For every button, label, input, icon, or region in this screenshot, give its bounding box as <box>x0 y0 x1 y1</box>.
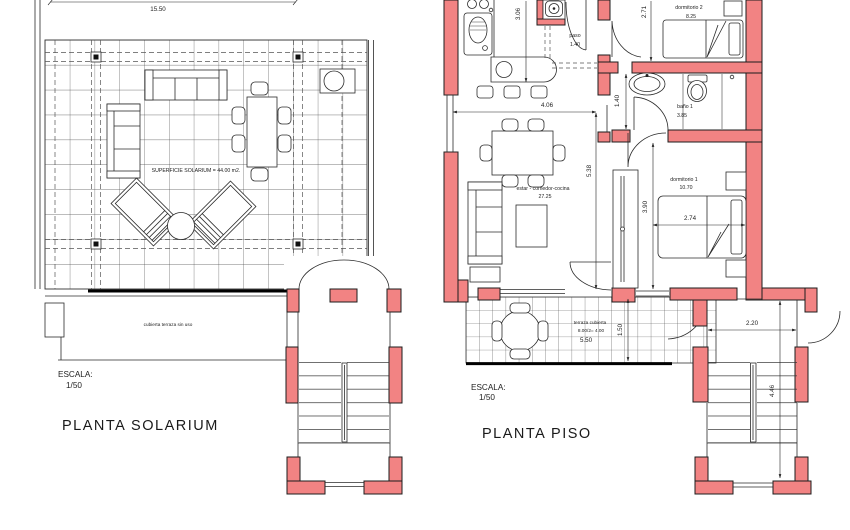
stove-burner <box>468 0 477 9</box>
round-table <box>168 213 195 240</box>
label-estar-area: 27.25 <box>539 194 552 200</box>
toilet <box>688 75 708 102</box>
solarium-title: PLANTA SOLARIUM <box>62 418 219 434</box>
label-bano-1: baño 1 <box>677 104 693 110</box>
label-dormitorio-2-area: 8.25 <box>686 14 696 20</box>
kitchen-sink <box>464 13 492 55</box>
solarium-width-dim: 15.50 <box>150 6 166 13</box>
label-terraza: terraza cubierta <box>574 320 607 325</box>
sofa-living <box>468 182 502 282</box>
sofa-horizontal <box>145 70 227 100</box>
stool <box>477 86 493 98</box>
solarium-plan: 15.50 SUPERFICIE SOLARIUM = 44.00 m2. cu… <box>35 0 406 498</box>
door-living-terrace <box>570 262 611 290</box>
label-terraza-dim: 5.50 <box>580 337 593 344</box>
wardrobe <box>613 170 638 288</box>
piso-scale-value: 1/50 <box>479 393 495 402</box>
solarium-terrace-note: cubierta terraza sin uso <box>144 322 193 327</box>
dim-2-20: 2.20 <box>746 320 759 327</box>
door-dormitorio-2 <box>612 21 641 57</box>
shower <box>543 0 565 19</box>
kitchen <box>464 0 597 98</box>
double-bed-dormitorio-1 <box>658 172 746 277</box>
piso-plan: paso 1.40 dormitorio 2 8.25 baño 1 3.85 … <box>444 0 840 494</box>
dim-4-46: 4.46 <box>769 384 776 397</box>
label-terraza-calc: 8.00/2= 4.00 <box>578 328 605 333</box>
label-dormitorio-1-area: 10.70 <box>680 185 693 191</box>
floor-plan-drawing: 15.50 SUPERFICIE SOLARIUM = 44.00 m2. cu… <box>0 0 850 530</box>
bano-1-fixtures <box>629 73 734 129</box>
side-table <box>320 69 355 93</box>
stove-burner <box>480 0 489 9</box>
dim-2-71: 2.71 <box>641 5 648 18</box>
label-estar: estar - comedor-cocina <box>516 186 569 192</box>
window-left <box>444 95 458 152</box>
floor-plan-svg: 15.50 SUPERFICIE SOLARIUM = 44.00 m2. cu… <box>0 0 850 530</box>
door-dormitorio-1 <box>628 133 666 167</box>
coffee-table <box>516 205 547 247</box>
dining-table-living <box>480 119 565 187</box>
nightstand <box>724 1 742 16</box>
washbasin <box>629 73 665 95</box>
label-paso-dim: 1.40 <box>570 42 580 48</box>
label-dormitorio-1: dormitorio 1 <box>670 177 698 183</box>
dim-1-50: 1.50 <box>617 323 624 336</box>
dim-5-38: 5.38 <box>586 164 593 177</box>
stool <box>504 86 520 98</box>
solarium-area-label: SUPERFICIE SOLARIUM = 44.00 m2. <box>152 168 241 174</box>
piso-title: PLANTA PISO <box>482 426 592 442</box>
nightstand <box>726 260 746 277</box>
footstool <box>470 267 500 282</box>
solarium-scale-value: 1/50 <box>66 381 82 390</box>
door-bano-1 <box>634 97 668 130</box>
kitchen-peninsula <box>491 57 557 82</box>
label-dormitorio-2: dormitorio 2 <box>675 5 703 11</box>
solarium-top-dimension <box>48 0 298 5</box>
dim-3-90: 3.90 <box>642 200 649 213</box>
sofa-vertical <box>107 104 140 178</box>
dim-4-06: 4.06 <box>541 102 554 109</box>
dim-2-74: 2.74 <box>684 215 697 222</box>
dim-3-06: 3.06 <box>515 7 522 20</box>
label-paso: paso <box>569 33 580 39</box>
nightstand <box>726 172 746 190</box>
piso-scale-label: ESCALA: <box>471 383 506 392</box>
stool <box>531 86 547 98</box>
label-bano-1-area: 3.85 <box>677 113 687 119</box>
solarium-scale-label: ESCALA: <box>58 370 93 379</box>
dim-1-40: 1.40 <box>614 94 621 107</box>
window-living-bottom <box>500 290 669 297</box>
